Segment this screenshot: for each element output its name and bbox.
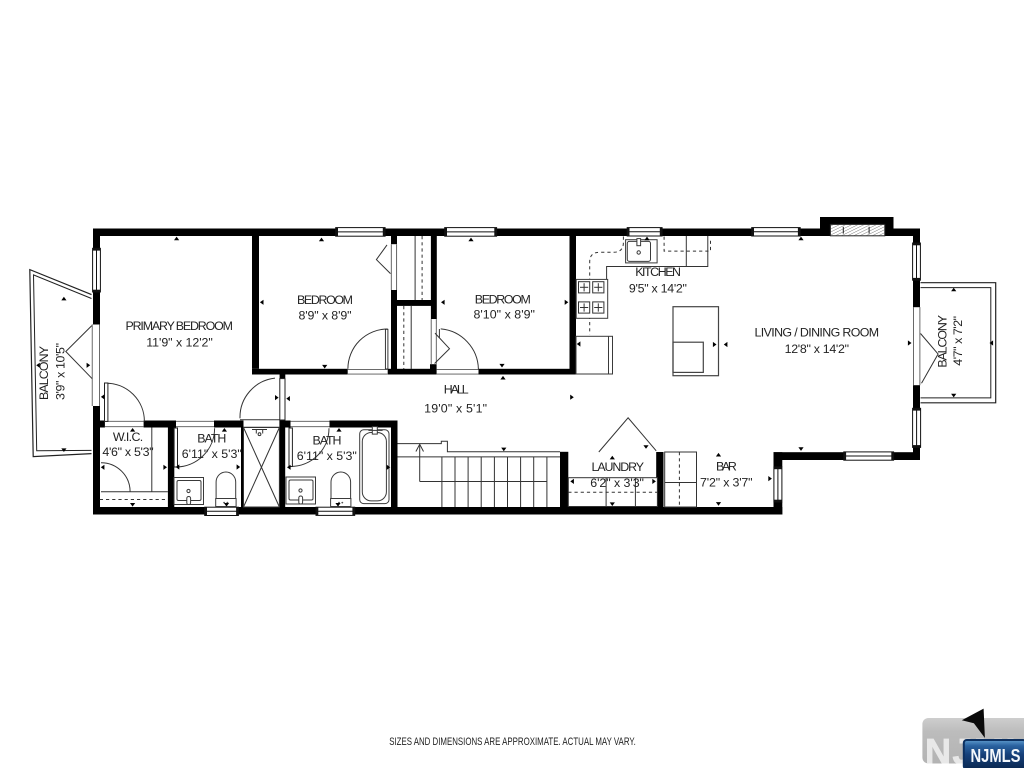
svg-text:7'2" x 3'7": 7'2" x 3'7" xyxy=(700,475,753,489)
svg-text:8'9" x 8'9": 8'9" x 8'9" xyxy=(299,308,352,322)
svg-text:SIZES AND DIMENSIONS ARE APPRO: SIZES AND DIMENSIONS ARE APPROXIMATE. AC… xyxy=(389,736,636,748)
svg-text:PRIMARY BEDROOM: PRIMARY BEDROOM xyxy=(126,319,233,333)
svg-text:BATH: BATH xyxy=(197,431,226,445)
svg-text:6'11" x 5'3": 6'11" x 5'3" xyxy=(297,449,357,463)
svg-text:NJMLS: NJMLS xyxy=(971,746,1021,766)
svg-text:LAUNDRY: LAUNDRY xyxy=(592,460,645,474)
svg-text:LIVING / DINING ROOM: LIVING / DINING ROOM xyxy=(755,326,880,340)
svg-text:BALCONY: BALCONY xyxy=(936,315,950,368)
svg-text:8'10" x 8'9": 8'10" x 8'9" xyxy=(473,308,535,322)
svg-text:BAR: BAR xyxy=(716,460,737,474)
svg-text:6'2" x 3'3": 6'2" x 3'3" xyxy=(590,476,644,490)
svg-text:11'9" x 12'2": 11'9" x 12'2" xyxy=(146,335,213,349)
svg-text:BATH: BATH xyxy=(313,433,342,447)
svg-text:BEDROOM: BEDROOM xyxy=(297,293,353,307)
svg-text:BEDROOM: BEDROOM xyxy=(475,292,531,306)
svg-text:19'0" x 5'1": 19'0" x 5'1" xyxy=(424,401,487,415)
svg-text:W.I.C.: W.I.C. xyxy=(113,430,143,444)
svg-text:4'7" x 7'2": 4'7" x 7'2" xyxy=(951,316,965,366)
svg-text:9'5" x 14'2": 9'5" x 14'2" xyxy=(629,281,687,295)
svg-text:3'9" x 10'5": 3'9" x 10'5" xyxy=(54,343,68,400)
svg-text:12'8" x 14'2": 12'8" x 14'2" xyxy=(785,342,849,356)
svg-text:4'6" x 5'3": 4'6" x 5'3" xyxy=(102,445,153,459)
svg-text:KITCHEN: KITCHEN xyxy=(635,265,681,279)
svg-text:BALCONY: BALCONY xyxy=(37,346,51,400)
svg-text:HALL: HALL xyxy=(444,383,469,397)
svg-text:6'11" x 5'3": 6'11" x 5'3" xyxy=(182,447,242,461)
